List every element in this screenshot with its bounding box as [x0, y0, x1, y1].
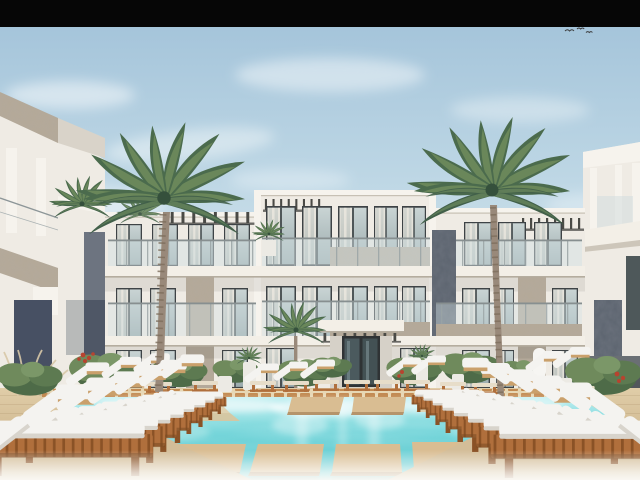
resort-render-image: Daylight 3D rendering of a modern white …	[0, 0, 640, 480]
balcony-railing	[108, 238, 582, 268]
bottom-haze	[0, 450, 640, 480]
left-building	[0, 92, 112, 392]
letterbox-top	[0, 0, 640, 27]
entrance	[318, 320, 404, 388]
right-building	[583, 142, 640, 392]
